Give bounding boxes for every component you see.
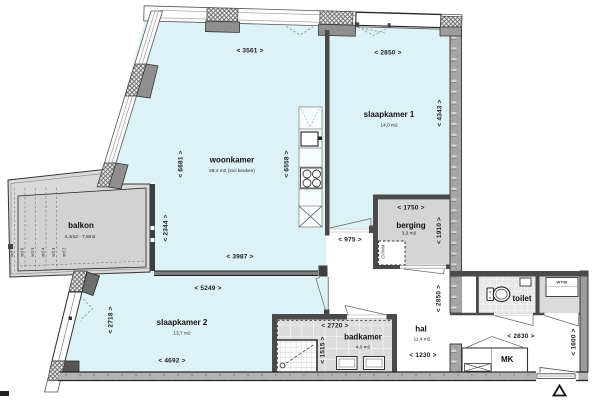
svg-text:hal: hal [415,325,427,334]
svg-text:berging: berging [396,221,425,230]
svg-text:< 3987 >: < 3987 > [226,254,253,261]
svg-text:< 1515 >: < 1515 > [320,336,327,363]
svg-text:11,4 m2: 11,4 m2 [414,337,431,343]
svg-text:< 4692 >: < 4692 > [158,358,185,365]
svg-text:< 2720 >: < 2720 > [321,323,348,330]
svg-text:slaapkamer 1: slaapkamer 1 [364,110,415,119]
svg-text:vrd 4: vrd 4 [41,247,46,257]
svg-text:< 1750 >: < 1750 > [397,205,424,212]
svg-text:4,0 m2: 4,0 m2 [356,345,371,351]
svg-text:CV/WM: CV/WM [381,244,386,259]
svg-text:< 3561 >: < 3561 > [236,48,263,55]
svg-text:< 2850 >: < 2850 > [374,50,401,57]
svg-text:vrd 5: vrd 5 [30,247,35,257]
svg-text:< 2718 >: < 2718 > [108,306,115,333]
svg-text:14,0 m2: 14,0 m2 [380,123,398,129]
svg-text:< 1910 >: < 1910 > [436,217,443,244]
svg-text:3,3 m2: 3,3 m2 [402,231,417,237]
svg-text:< 2850 >: < 2850 > [436,285,443,312]
svg-text:vrd 7: vrd 7 [10,247,15,257]
svg-text:< 4343 >: < 4343 > [437,99,444,126]
svg-text:< 2344 >: < 2344 > [163,214,170,241]
svg-text:slaapkamer 2: slaapkamer 2 [157,318,208,327]
svg-text:woonkamer: woonkamer [209,156,254,165]
svg-text:WTW: WTW [557,280,568,285]
svg-text:< 1230 >: < 1230 > [409,352,436,359]
svg-text:vrd 2: vrd 2 [62,247,67,257]
svg-text:vrd 3: vrd 3 [51,247,56,257]
svg-text:vrd 6: vrd 6 [20,247,25,257]
svg-text:MK: MK [501,355,514,364]
svg-text:badkamer: badkamer [344,333,382,342]
svg-text:< 6558 >: < 6558 > [284,150,291,177]
svg-text:< 6681 >: < 6681 > [178,150,185,177]
svg-text:< 5249 >: < 5249 > [194,285,221,292]
svg-text:28,4 m2 (incl keuken): 28,4 m2 (incl keuken) [209,168,255,174]
svg-text:< 2830 >: < 2830 > [507,333,534,340]
svg-text:13,7 m2: 13,7 m2 [173,331,191,337]
svg-text:4,4m2 - 7,8m2: 4,4m2 - 7,8m2 [65,234,96,240]
svg-text:toilet: toilet [512,294,531,303]
svg-text:balkon: balkon [68,221,94,230]
svg-text:< 1600 >: < 1600 > [571,328,578,355]
svg-text:< 975 >: < 975 > [338,237,361,244]
